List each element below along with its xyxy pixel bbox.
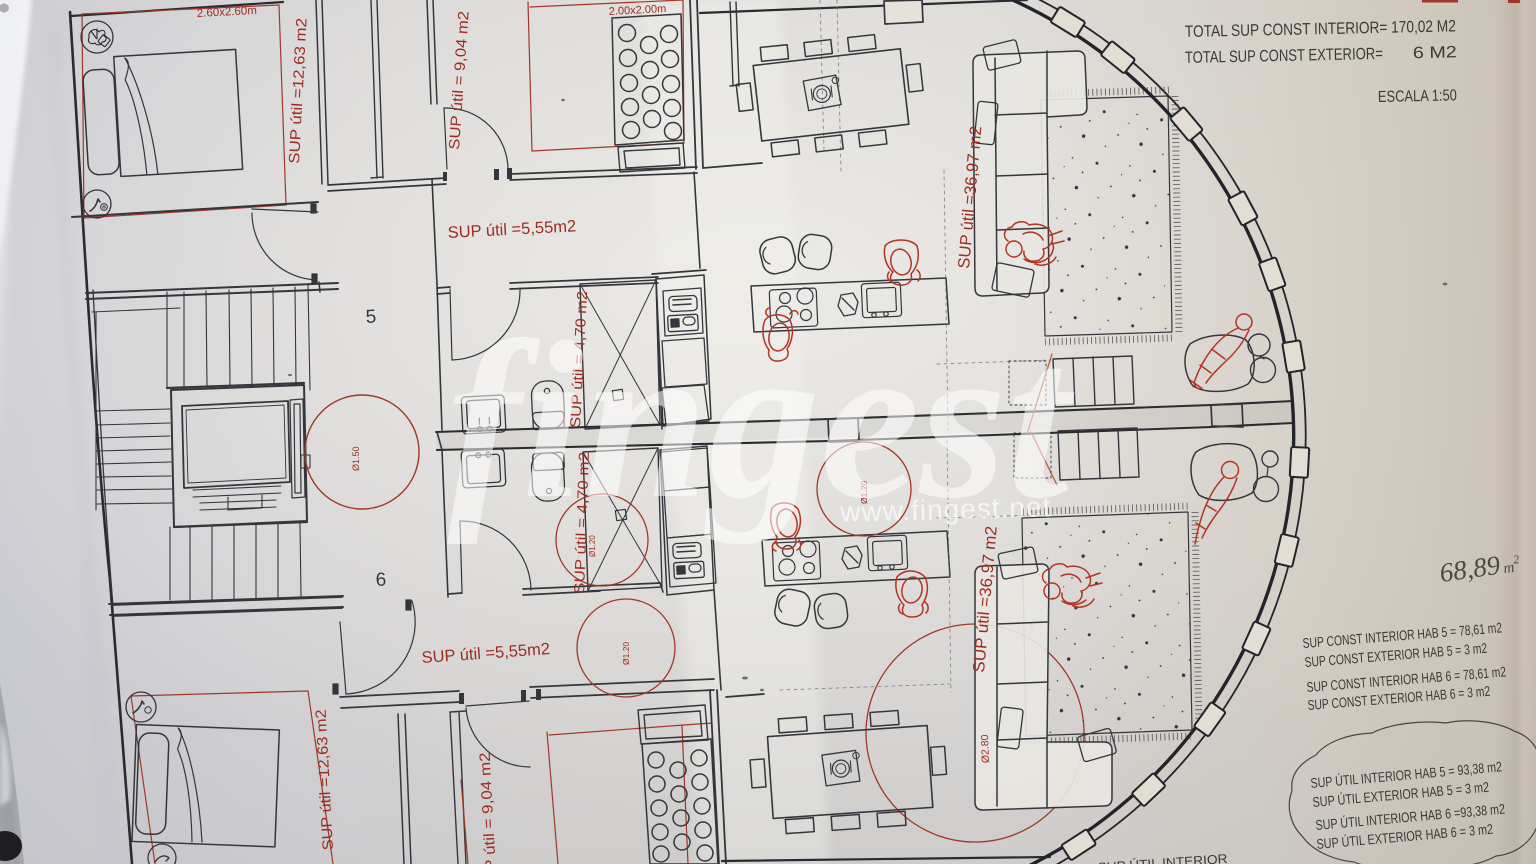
svg-text:6 M2: 6 M2 — [1413, 43, 1457, 62]
svg-text:ESCALA 1:50: ESCALA 1:50 — [1378, 87, 1457, 106]
svg-text:Ø1.20: Ø1.20 — [621, 642, 631, 665]
svg-text:5: 5 — [365, 306, 377, 328]
svg-text:Ø2.80: Ø2.80 — [979, 734, 992, 763]
svg-text:Ø1.50: Ø1.50 — [351, 446, 361, 471]
svg-text:www.fingest.net: www.fingest.net — [839, 491, 1052, 528]
svg-text:6: 6 — [375, 569, 387, 591]
